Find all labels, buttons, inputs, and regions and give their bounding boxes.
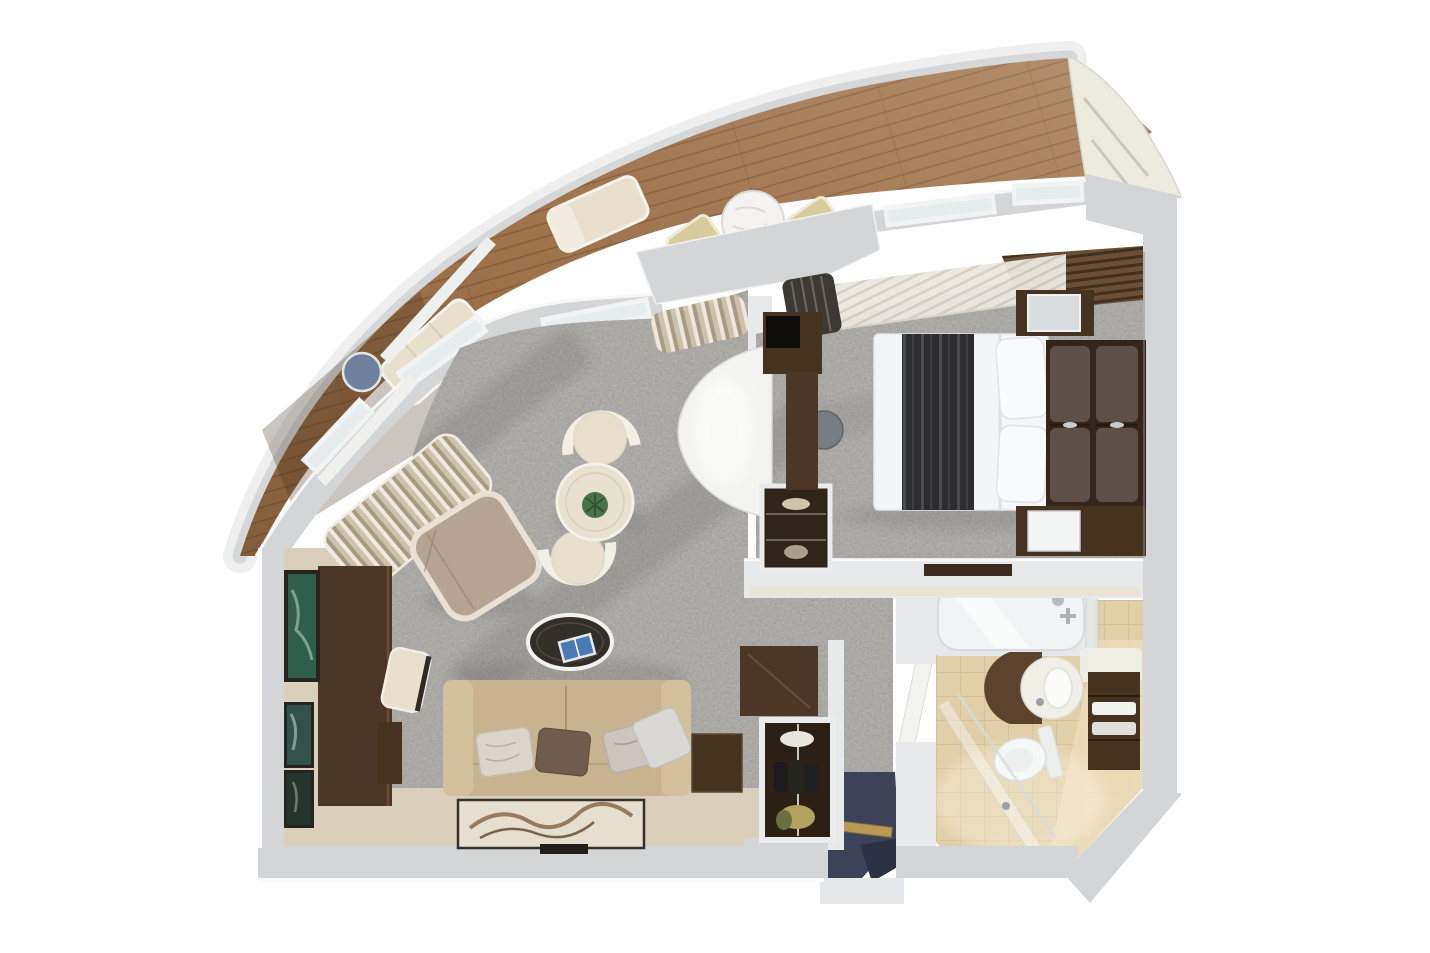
cabinet-niche (766, 316, 800, 348)
bar-item-green (776, 810, 792, 830)
round-side-table (343, 353, 381, 391)
coffee-table (528, 615, 612, 669)
towel-shelves (1088, 672, 1140, 770)
desk-cabinet (378, 722, 402, 784)
wall-art-1 (284, 570, 320, 682)
shower-handle (1002, 802, 1010, 810)
headboard-cushion-3 (1096, 346, 1138, 422)
cabinet-item-2 (784, 545, 808, 559)
cabinet-mirror (1028, 295, 1080, 331)
sink-faucet (1036, 698, 1044, 706)
cabinet-item-1 (782, 498, 810, 510)
bar-bottle-3 (804, 764, 818, 792)
towel-1 (1092, 702, 1136, 715)
headboard-cushion-4 (1096, 428, 1138, 502)
bed-pillow-2 (996, 425, 1048, 503)
bathroom-west-wall-lower (896, 742, 936, 850)
floor-plan-render (0, 0, 1430, 953)
vanity-desk (786, 372, 818, 490)
side-table (692, 734, 742, 792)
towel-2 (1092, 722, 1136, 735)
bar-bottle-2 (790, 760, 802, 794)
wall-threshold-strip (750, 586, 1140, 596)
sofa-pillow-2 (535, 727, 591, 776)
headboard-cushion-2 (1050, 428, 1090, 502)
wall-art-3 (284, 770, 314, 828)
headboard-pin-1 (1063, 422, 1077, 428)
window-5 (1011, 180, 1084, 206)
bottom-wall-corner (744, 838, 828, 878)
runner-stripes (902, 334, 974, 510)
decor-tray (924, 564, 1012, 576)
round-table (557, 464, 633, 540)
sofa-arm-left (443, 680, 473, 796)
bar-bottle-1 (774, 762, 788, 792)
display-cabinet (762, 486, 830, 570)
console-stand (540, 844, 588, 854)
tv-screen (1028, 511, 1080, 551)
wall-art-2 (284, 702, 314, 768)
bar-plate (780, 731, 814, 747)
artwork-console (458, 800, 644, 854)
sink-basin (1044, 668, 1072, 708)
headboard (1046, 340, 1146, 508)
entry-step (820, 878, 904, 904)
sofa (443, 680, 693, 796)
right-wall (1143, 196, 1181, 796)
tv-console (1016, 506, 1146, 556)
double-bed (874, 334, 1049, 510)
headboard-pin-2 (1110, 422, 1124, 428)
mirrored-cabinet (1016, 290, 1094, 336)
bar-cabinet (762, 720, 833, 840)
headboard-cushion-1 (1050, 346, 1090, 422)
sofa-pillow-1 (475, 726, 535, 777)
floor-plan-canvas (0, 0, 1430, 953)
bathroom-bottom-wall (896, 846, 1078, 878)
bathroom-west-wall-upper (896, 598, 936, 664)
curved-cabinet-highlight (694, 375, 754, 485)
bed-pillow-1 (995, 336, 1048, 419)
